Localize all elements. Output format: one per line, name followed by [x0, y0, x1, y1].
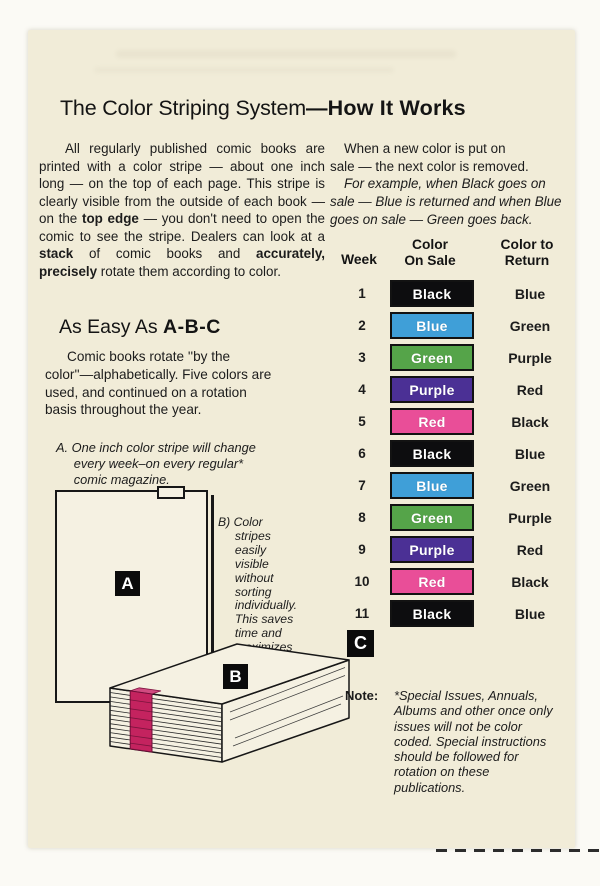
color-on-sale-swatch: Black	[390, 600, 474, 627]
table-row: 2 Blue Green	[334, 312, 586, 339]
showthrough-smudge	[116, 50, 456, 58]
color-on-sale-swatch: Green	[390, 344, 474, 371]
week-number: 4	[334, 382, 390, 397]
table-row: 8 Green Purple	[334, 504, 586, 531]
week-number: 5	[334, 414, 390, 429]
intro-right-paragraph-2: For example, when Black goes on sale — B…	[330, 175, 582, 228]
week-number: 10	[334, 574, 390, 589]
week-number: 11	[334, 606, 390, 621]
caption-item-a: A. One inch color stripe will change eve…	[56, 440, 256, 487]
title-main: The Color Striping System	[60, 96, 306, 120]
intro-paragraph-left: All regularly published comic books are …	[39, 140, 325, 280]
week-number: 1	[334, 286, 390, 301]
table-row: 6 Black Blue	[334, 440, 586, 467]
section-heading-easy: As Easy As A-B-C	[59, 316, 359, 339]
label-badge-a: A	[115, 571, 140, 596]
dashed-cut-line	[436, 849, 600, 852]
intro-right-paragraph-1: When a new color is put on sale — the ne…	[330, 140, 582, 175]
color-on-sale-swatch: Blue	[390, 312, 474, 339]
color-to-return-label: Red	[474, 542, 586, 558]
note-body: *Special Issues, Annuals, Albums and oth…	[394, 688, 589, 795]
color-to-return-label: Green	[474, 318, 586, 334]
table-row: 3 Green Purple	[334, 344, 586, 371]
table-row: 10 Red Black	[334, 568, 586, 595]
document-page: The Color Striping System—How It Works A…	[28, 30, 575, 848]
table-row: 5 Red Black	[334, 408, 586, 435]
week-number: 8	[334, 510, 390, 525]
comic-cover-stripe-tab	[157, 486, 185, 499]
color-to-return-label: Black	[474, 414, 586, 430]
table-row: 1 Black Blue	[334, 280, 586, 307]
note-label: Note:	[345, 688, 378, 703]
color-on-sale-swatch: Red	[390, 408, 474, 435]
week-number: 6	[334, 446, 390, 461]
color-on-sale-swatch: Black	[390, 280, 474, 307]
color-on-sale-swatch: Green	[390, 504, 474, 531]
week-number: 9	[334, 542, 390, 557]
label-badge-c: C	[347, 630, 374, 657]
color-to-return-label: Blue	[474, 286, 586, 302]
scan-background: { "title": {"main": "The Color Striping …	[0, 0, 600, 886]
intro-column-right: When a new color is put on sale — the ne…	[330, 140, 582, 229]
showthrough-smudge	[94, 67, 394, 73]
color-on-sale-swatch: Purple	[390, 536, 474, 563]
color-on-sale-swatch: Purple	[390, 376, 474, 403]
table-row: 7 Blue Green	[334, 472, 586, 499]
color-to-return-label: Blue	[474, 446, 586, 462]
color-to-return-label: Blue	[474, 606, 586, 622]
easy-heading-main: As Easy As	[59, 316, 163, 338]
easy-paragraph: Comic books rotate ''by the color''—alph…	[45, 348, 330, 419]
color-to-return-label: Green	[474, 478, 586, 494]
table-header-color-to-return: Color to Return	[467, 237, 587, 268]
rotation-table: 1 Black Blue 2 Blue Green 3 Green Purple…	[334, 280, 586, 627]
label-badge-b: B	[223, 664, 248, 689]
color-on-sale-swatch: Red	[390, 568, 474, 595]
easy-heading-abc: A-B-C	[163, 316, 221, 338]
week-number: 3	[334, 350, 390, 365]
color-to-return-label: Purple	[474, 350, 586, 366]
table-row: 9 Purple Red	[334, 536, 586, 563]
week-number: 7	[334, 478, 390, 493]
color-on-sale-swatch: Black	[390, 440, 474, 467]
table-row: 4 Purple Red	[334, 376, 586, 403]
table-row: 11 Black Blue	[334, 600, 586, 627]
color-to-return-label: Purple	[474, 510, 586, 526]
color-on-sale-swatch: Blue	[390, 472, 474, 499]
week-number: 2	[334, 318, 390, 333]
title-emphasis: —How It Works	[306, 96, 466, 120]
color-to-return-label: Black	[474, 574, 586, 590]
page-title: The Color Striping System—How It Works	[60, 96, 540, 121]
color-to-return-label: Red	[474, 382, 586, 398]
